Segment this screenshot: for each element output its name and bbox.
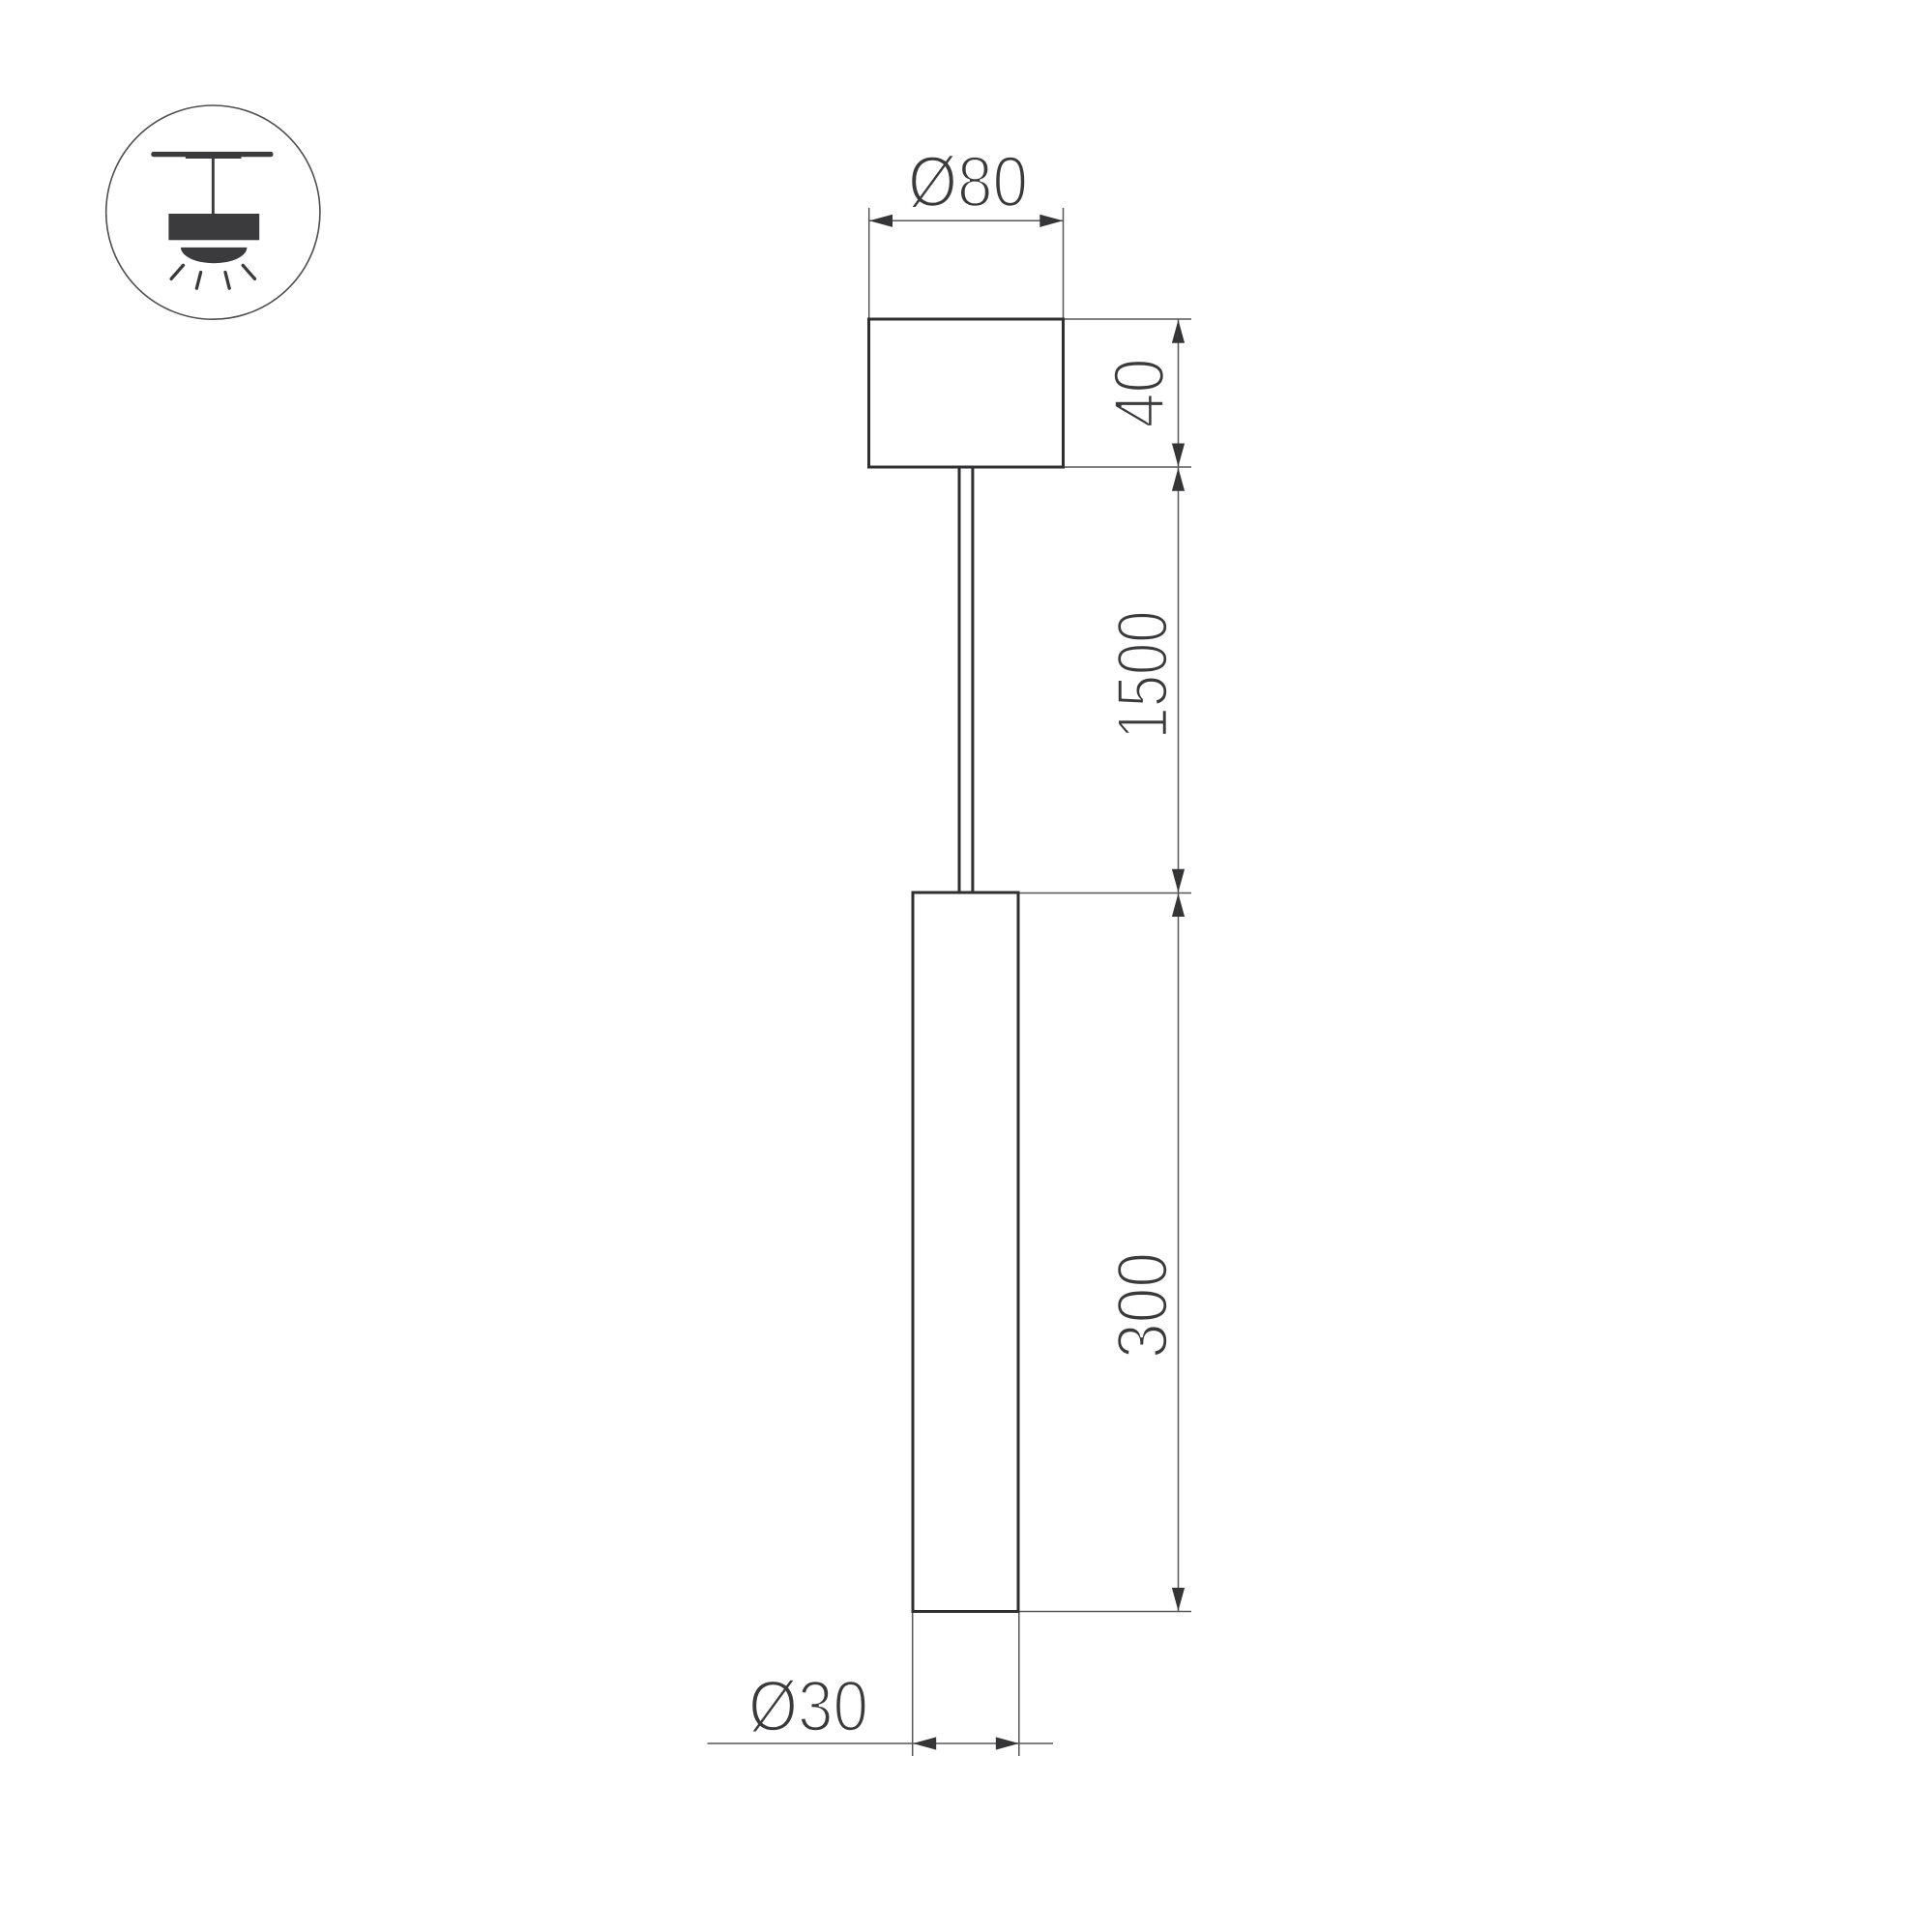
- svg-text:300: 300: [1102, 1252, 1183, 1359]
- svg-text:Ø80: Ø80: [908, 142, 1028, 222]
- svg-text:1500: 1500: [1102, 611, 1183, 740]
- svg-text:Ø30: Ø30: [748, 1666, 868, 1746]
- svg-text:40: 40: [1099, 359, 1180, 428]
